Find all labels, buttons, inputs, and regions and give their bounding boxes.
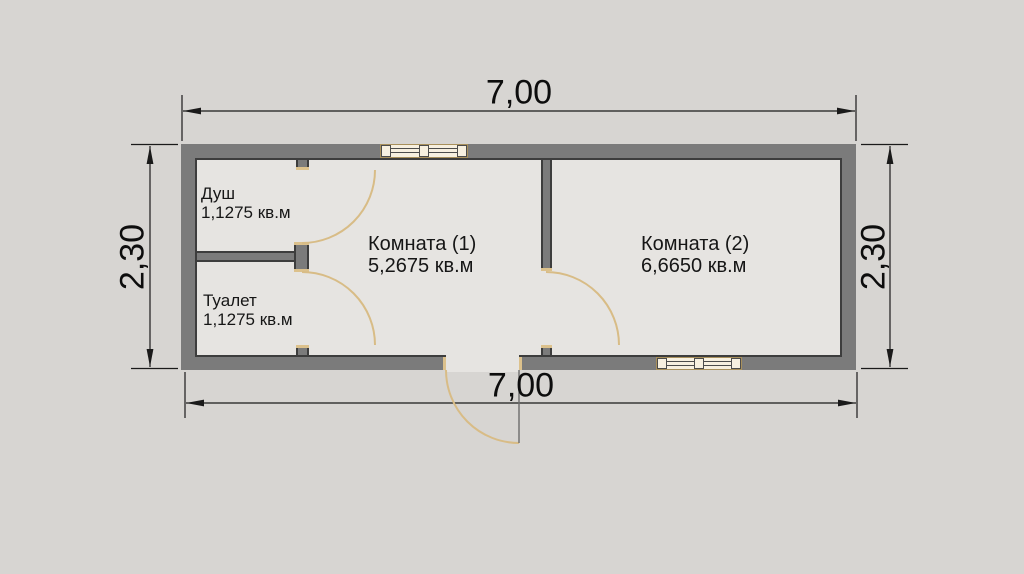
door-swings: [302, 170, 619, 443]
arrow-right-icon: [837, 108, 855, 115]
floorplan-canvas: Душ 1,1275 кв.м Туалет 1,1275 кв.м Комна…: [0, 0, 1024, 574]
room-name: Туалет: [203, 291, 293, 310]
door-arc-toilet: [302, 272, 375, 345]
door-arc-room2: [546, 272, 619, 345]
arrow-down-icon: [887, 349, 894, 367]
arrow-up-icon: [887, 146, 894, 164]
room-area: 1,1275 кв.м: [201, 203, 291, 222]
arrow-up-icon: [147, 146, 154, 164]
room-area: 1,1275 кв.м: [203, 310, 293, 329]
room-area: 5,2675 кв.м: [368, 255, 476, 277]
dimension-text-top: 7,00: [486, 74, 552, 113]
arrow-left-icon: [186, 400, 204, 407]
room-label-room1: Комната (1) 5,2675 кв.м: [368, 233, 476, 277]
room-name: Комната (2): [641, 233, 749, 255]
room-label-toilet: Туалет 1,1275 кв.м: [203, 291, 293, 329]
arrow-left-icon: [183, 108, 201, 115]
arrow-down-icon: [147, 349, 154, 367]
room-label-room2: Комната (2) 6,6650 кв.м: [641, 233, 749, 277]
door-arc-shower: [302, 170, 375, 243]
room-name: Комната (1): [368, 233, 476, 255]
room-name: Душ: [201, 184, 291, 203]
dimension-arrows: [147, 108, 894, 407]
dimension-text-right: 2,30: [855, 224, 894, 290]
room-label-shower: Душ 1,1275 кв.м: [201, 184, 291, 222]
room-area: 6,6650 кв.м: [641, 255, 749, 277]
dimension-text-left: 2,30: [114, 224, 153, 290]
dimension-text-bottom: 7,00: [488, 367, 554, 406]
arrow-right-icon: [838, 400, 856, 407]
